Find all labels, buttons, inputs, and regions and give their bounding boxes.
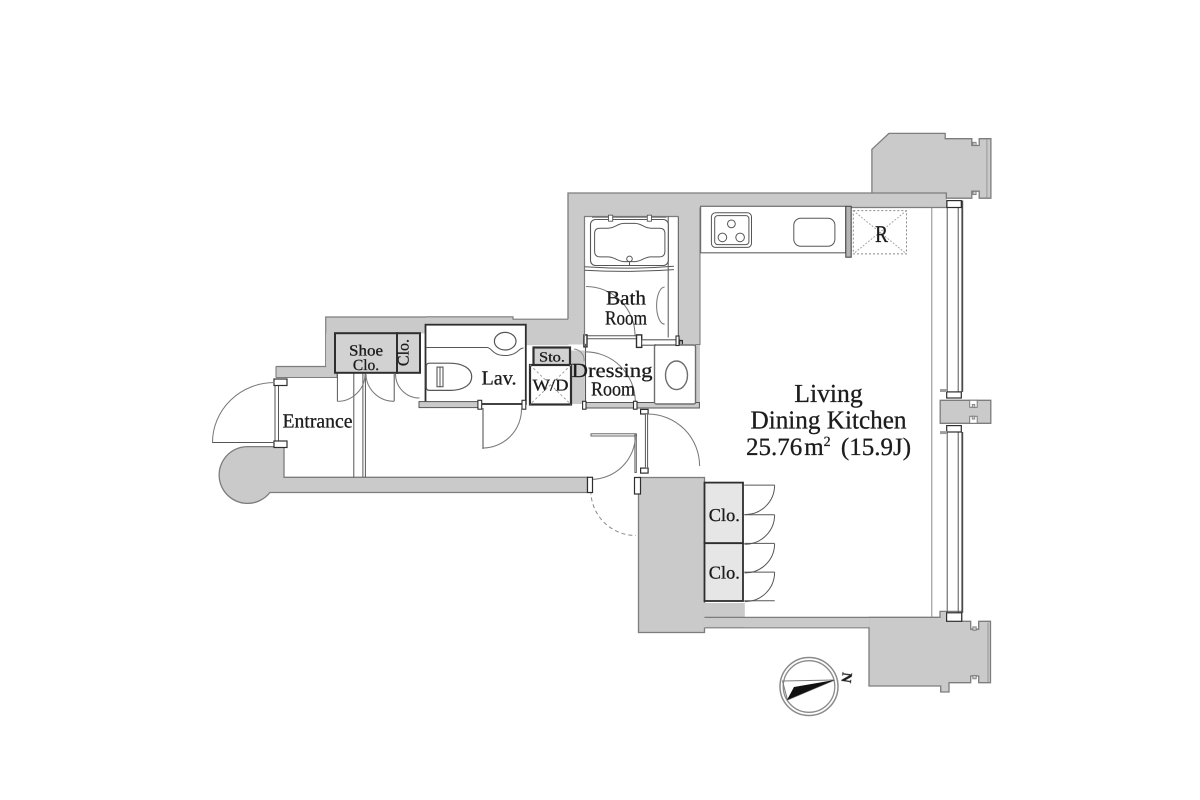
- svg-text:25.76m2 (15.9J): 25.76m2 (15.9J): [746, 434, 911, 461]
- svg-text:Bath: Bath: [606, 288, 646, 310]
- svg-text:Living: Living: [794, 379, 863, 408]
- svg-text:R: R: [875, 222, 888, 248]
- svg-text:Room: Room: [591, 379, 635, 401]
- svg-text:Clo.: Clo.: [396, 339, 413, 366]
- svg-text:Sto.: Sto.: [539, 351, 565, 366]
- svg-text:Entrance: Entrance: [283, 411, 353, 433]
- svg-text:Dining Kitchen: Dining Kitchen: [751, 406, 907, 435]
- svg-text:Clo.: Clo.: [353, 357, 379, 374]
- svg-text:Clo.: Clo.: [709, 563, 740, 583]
- svg-text:Room: Room: [605, 308, 647, 330]
- svg-text:Clo.: Clo.: [709, 505, 740, 525]
- svg-text:W/D: W/D: [533, 376, 569, 395]
- svg-text:Lav.: Lav.: [482, 368, 517, 390]
- svg-text:N: N: [837, 671, 854, 684]
